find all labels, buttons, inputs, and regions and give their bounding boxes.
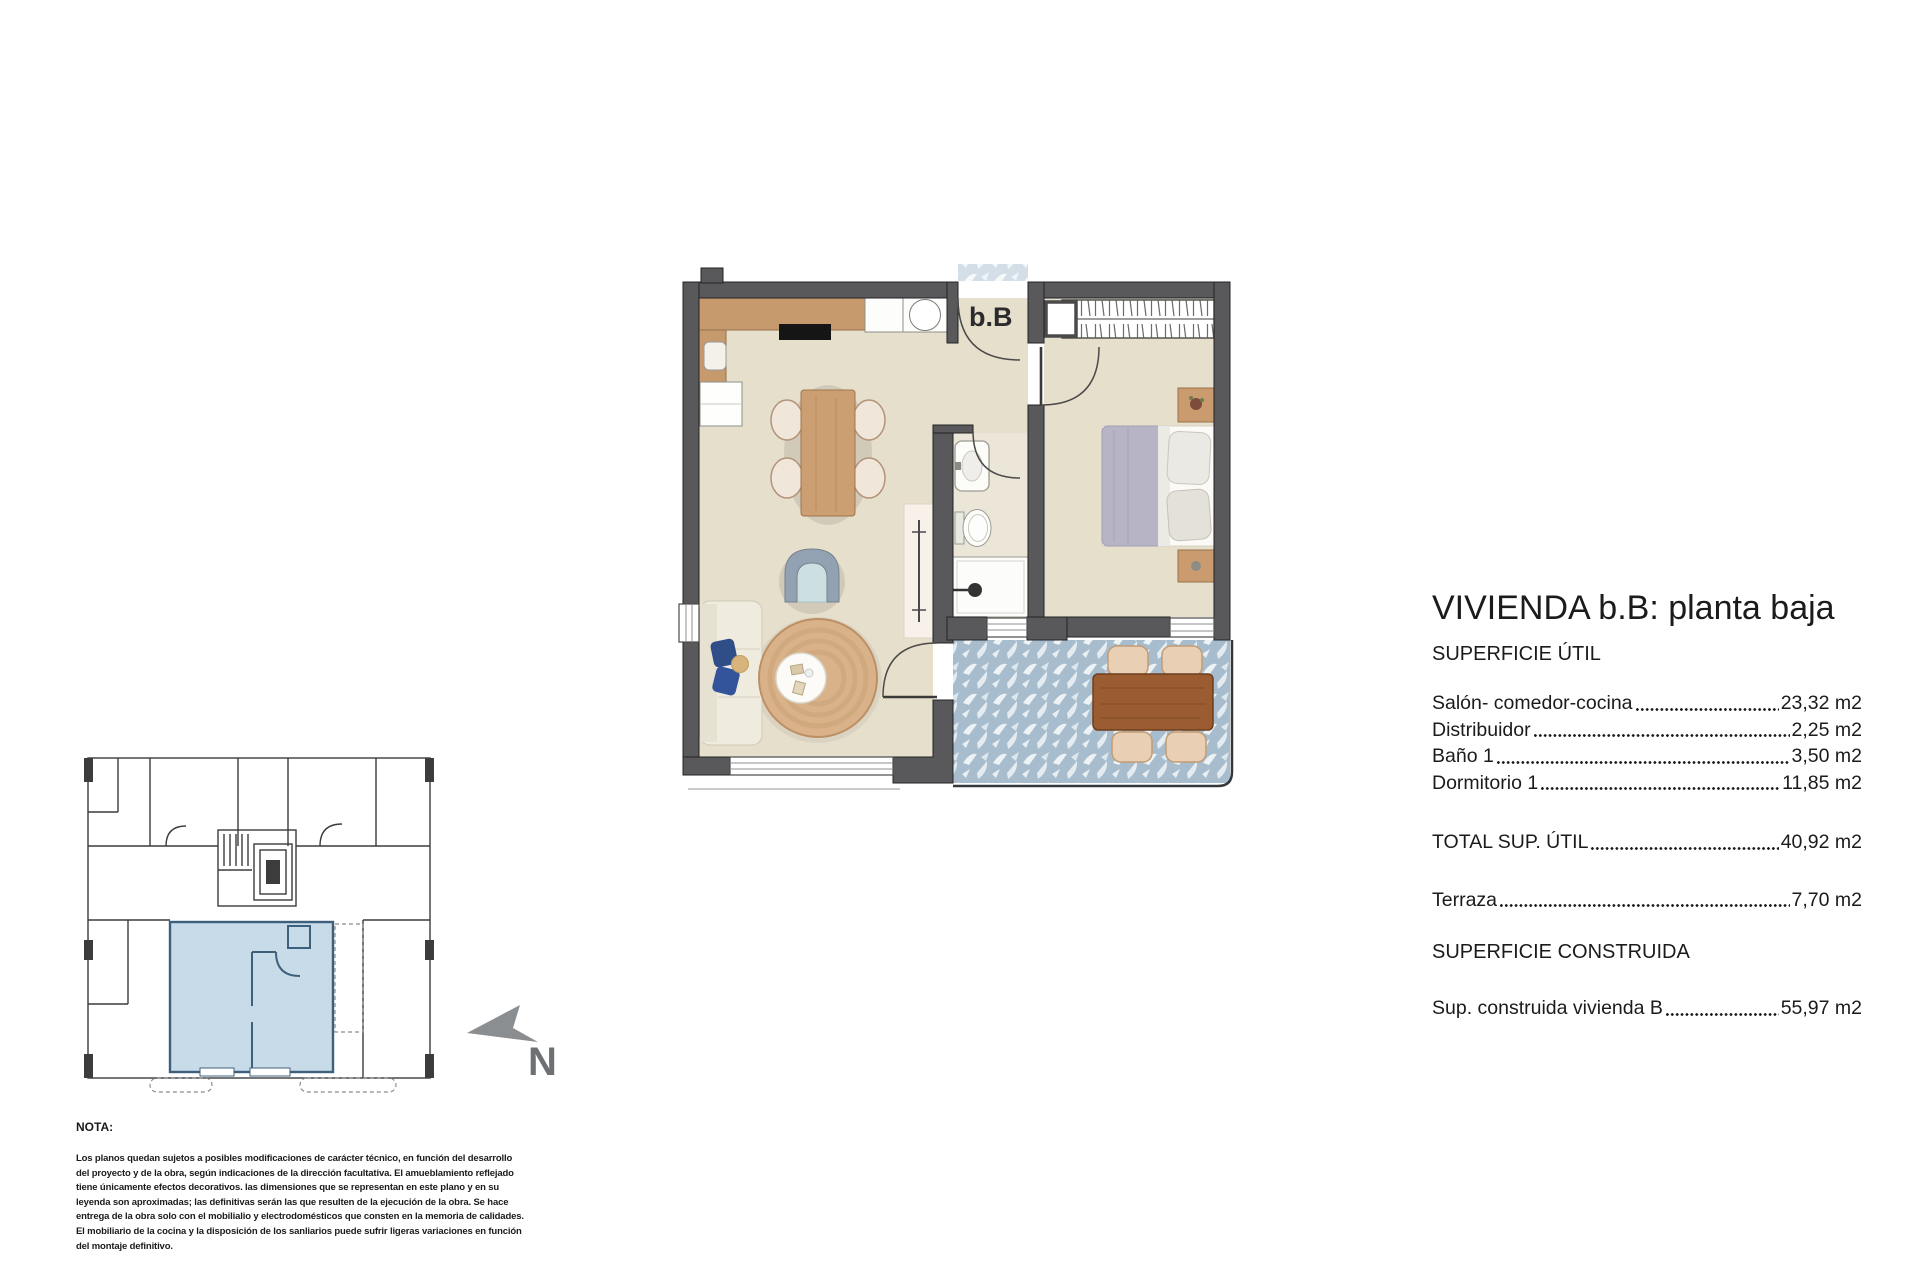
shower-drain — [968, 583, 982, 597]
dining-chair — [853, 458, 885, 498]
total-value: 40,92 m2 — [1781, 829, 1862, 856]
terraza-label: Terraza — [1432, 887, 1497, 914]
total-label: TOTAL SUP. ÚTIL — [1432, 829, 1588, 856]
dining-chair — [771, 458, 803, 498]
area-label: Baño 1 — [1432, 743, 1494, 770]
area-label: Salón- comedor-cocina — [1432, 690, 1633, 717]
dotted-leader — [1540, 785, 1780, 792]
dotted-leader — [1533, 732, 1790, 739]
superficie-construida-heading: SUPERFICIE CONSTRUIDA — [1432, 940, 1862, 964]
note-line: Los planos quedan sujetos a posibles mod… — [76, 1152, 566, 1167]
area-row: Salón- comedor-cocina 23,32 m2 — [1432, 690, 1862, 717]
area-row: Dormitorio 1 11,85 m2 — [1432, 770, 1862, 797]
construida-value: 55,97 m2 — [1781, 995, 1862, 1022]
sofa-pillow-round — [732, 656, 749, 673]
elevator — [254, 844, 292, 900]
area-row: Baño 1 3,50 m2 — [1432, 743, 1862, 770]
area-label: Dormitorio 1 — [1432, 770, 1538, 797]
terrace-chair — [1112, 732, 1152, 762]
area-label: Distribuidor — [1432, 717, 1531, 744]
coffee-table — [776, 653, 826, 703]
toilet — [955, 510, 991, 547]
dining-table — [801, 390, 855, 516]
dotted-leader — [1496, 759, 1790, 766]
note-line: leyenda son aproximadas; las definitivas… — [76, 1196, 566, 1211]
note-line: del montaje definitivo. — [76, 1240, 566, 1255]
area-value: 2,25 m2 — [1792, 717, 1862, 744]
area-value: 3,50 m2 — [1792, 743, 1862, 770]
area-details: VIVIENDA b.B: planta baja SUPERFICIE ÚTI… — [1432, 588, 1862, 1022]
highlighted-unit — [170, 922, 333, 1076]
note-line: tiene únicamente efectos decorativos. la… — [76, 1181, 566, 1196]
bed — [1102, 426, 1214, 546]
area-value: 11,85 m2 — [1782, 770, 1862, 797]
terrace-chair — [1108, 646, 1148, 676]
cooktop — [779, 324, 831, 340]
pillow — [1166, 489, 1211, 542]
construida-label: Sup. construida vivienda B — [1432, 995, 1663, 1022]
shower — [953, 557, 1028, 617]
superficie-util-heading: SUPERFICIE ÚTIL — [1432, 642, 1862, 666]
stoop-dashed — [300, 1078, 396, 1092]
entry-closet — [1046, 302, 1076, 336]
floor-plan: b.B — [555, 225, 1255, 800]
counter-sink-small — [704, 342, 726, 370]
terrace-table — [1093, 674, 1213, 730]
dotted-leader — [1590, 845, 1778, 852]
total-row: TOTAL SUP. ÚTIL 40,92 m2 — [1432, 829, 1862, 856]
balcony-dashed — [335, 924, 363, 1032]
note-heading: NOTA: — [76, 1120, 566, 1134]
note-line: entrega de la obra solo con el mobiliali… — [76, 1210, 566, 1225]
kitchen-sink — [910, 300, 941, 331]
armchair — [785, 549, 839, 602]
construida-row: Sup. construida vivienda B 55,97 m2 — [1432, 995, 1862, 1022]
dining-chair — [771, 400, 803, 440]
dining-chair — [853, 400, 885, 440]
note-line: del proyecto y de la obra, según indicac… — [76, 1167, 566, 1182]
sofa — [700, 601, 762, 745]
page-title: VIVIENDA b.B: planta baja — [1432, 588, 1862, 628]
dotted-leader — [1499, 902, 1790, 909]
pillow — [1167, 431, 1212, 485]
terraza-value: 7,70 m2 — [1792, 887, 1862, 914]
plan-sheet: b.B — [0, 0, 1920, 1280]
dotted-leader — [1665, 1011, 1779, 1018]
nightstand — [1178, 550, 1214, 582]
nightstand — [1178, 388, 1214, 422]
entry-landing-tiles — [958, 264, 1028, 281]
terrace-chair — [1162, 646, 1202, 676]
area-value: 23,32 m2 — [1781, 690, 1862, 717]
terrace-chair — [1166, 732, 1206, 762]
dotted-leader — [1635, 706, 1779, 713]
stoop-dashed — [150, 1078, 212, 1092]
area-row: Distribuidor 2,25 m2 — [1432, 717, 1862, 744]
unit-label: b.B — [969, 302, 1013, 332]
key-plan: N — [70, 750, 610, 1110]
note-line: El mobiliario de la cocina y la disposic… — [76, 1225, 566, 1240]
wardrobe — [1062, 300, 1214, 338]
north-label: N — [528, 1040, 557, 1084]
console-table — [904, 504, 934, 638]
north-arrow: N — [467, 1005, 557, 1084]
terraza-row: Terraza 7,70 m2 — [1432, 887, 1862, 914]
note: NOTA: Los planos quedan sujetos a posibl… — [76, 1120, 566, 1254]
